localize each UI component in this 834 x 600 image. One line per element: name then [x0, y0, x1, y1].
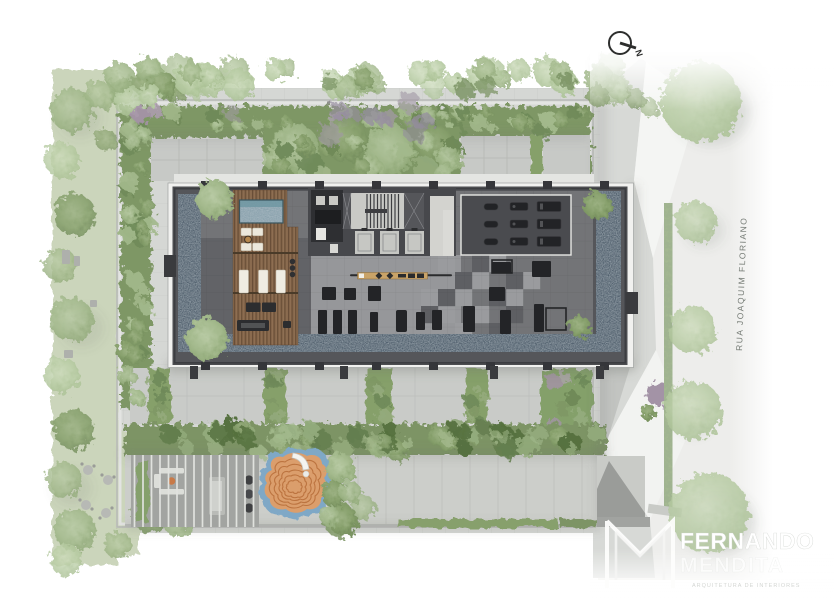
svg-text:MENDITA: MENDITA — [680, 554, 785, 577]
svg-text:FERNANDO: FERNANDO — [680, 528, 814, 554]
svg-text:ARQUITETURA DE INTERIORES: ARQUITETURA DE INTERIORES — [692, 583, 800, 589]
